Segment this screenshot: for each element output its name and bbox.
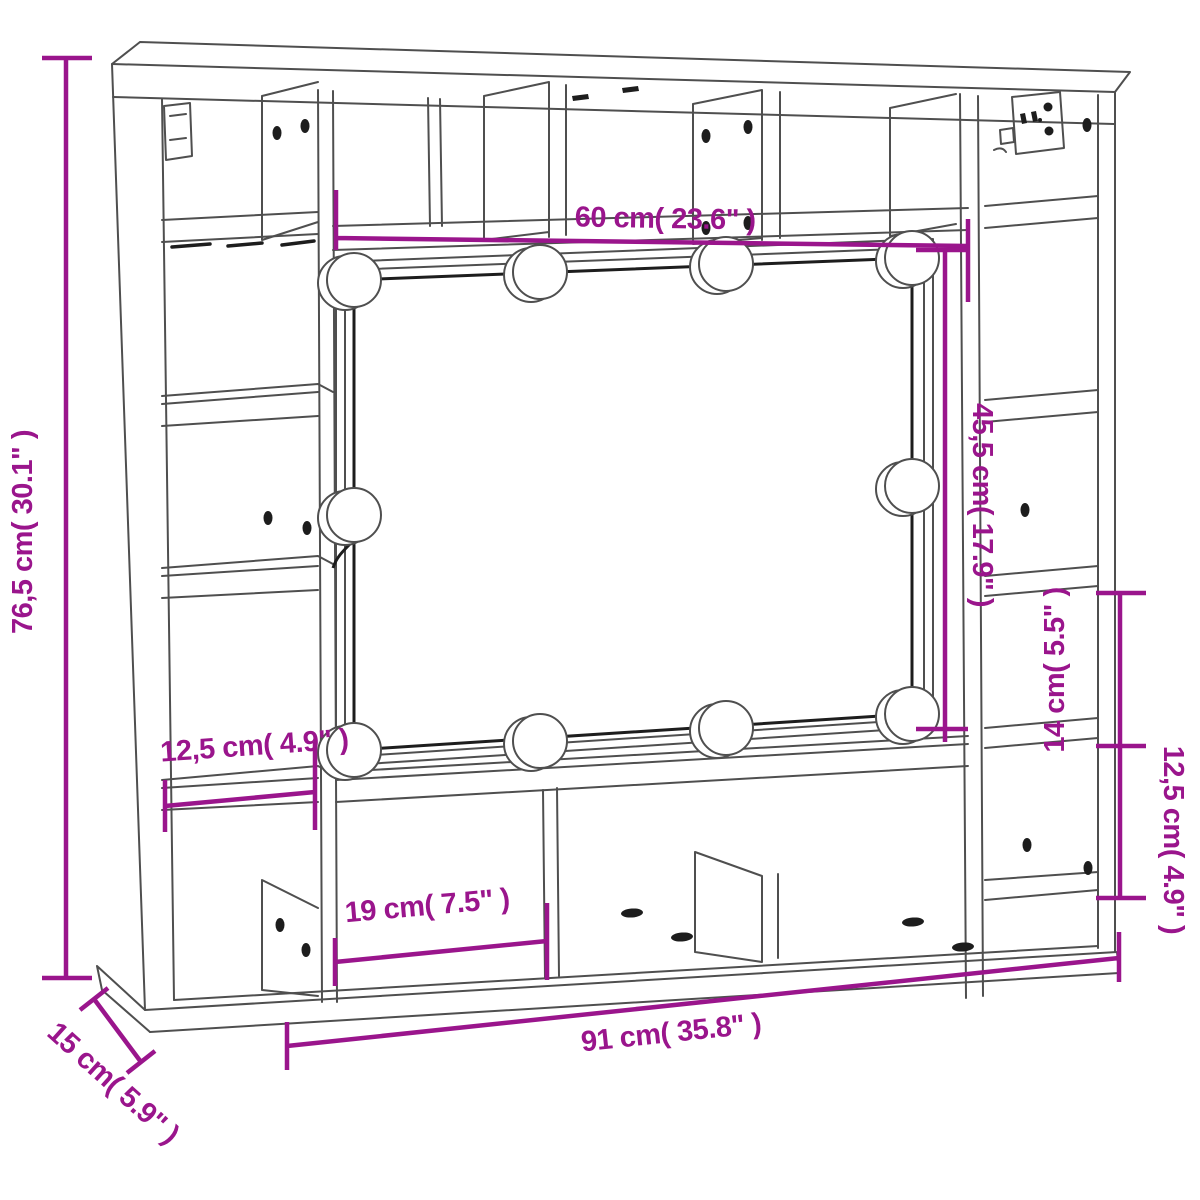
led-bulb-icon bbox=[885, 231, 939, 285]
dim-line-right-upper-shelf-height bbox=[1096, 593, 1146, 746]
bracket-hole bbox=[1038, 118, 1042, 122]
led-bulb-icon bbox=[513, 245, 567, 299]
led-bulb-icon bbox=[327, 488, 381, 542]
floor-hole bbox=[621, 908, 644, 919]
bottom-row-dividers bbox=[543, 788, 778, 978]
led-wire-frame bbox=[354, 258, 912, 750]
bracket-hole bbox=[1044, 103, 1053, 112]
dim-label-mirror-height: 45,5 cm( 17.9" ) bbox=[966, 403, 998, 607]
dimension-overall-height: 76,5 cm( 30.1" ) bbox=[7, 58, 92, 978]
dim-label-bottom-compartment-width: 19 cm( 7.5" ) bbox=[344, 883, 511, 929]
dim-label-mirror-width: 60 cm( 23.6" ) bbox=[574, 201, 755, 236]
dimension-right-upper-shelf-height: 14 cm( 5.5" ) bbox=[1039, 587, 1146, 752]
panel-hole bbox=[302, 943, 311, 957]
panel-hole bbox=[303, 521, 312, 535]
dim-label-depth: 15 cm( 5.9" ) bbox=[41, 1016, 185, 1150]
dimension-right-lower-shelf-height: 12,5 cm( 4.9" ) bbox=[1096, 746, 1189, 934]
panel-hole bbox=[276, 918, 285, 932]
dim-line-right-lower-shelf-height bbox=[1096, 746, 1146, 898]
left-bracket-icon bbox=[164, 103, 192, 160]
shelf-shadow-dashes bbox=[172, 241, 314, 247]
dim-line-overall-height bbox=[42, 58, 92, 978]
mirror-cabinet-dimension-drawing: 76,5 cm( 30.1" ) 60 cm( 23.6" ) 45,5 cm(… bbox=[0, 0, 1200, 1200]
dimensions: 76,5 cm( 30.1" ) 60 cm( 23.6" ) 45,5 cm(… bbox=[7, 58, 1189, 1150]
panel-hole bbox=[1084, 861, 1093, 875]
led-bulb-icon bbox=[513, 714, 567, 768]
cabinet-bottom-slab bbox=[145, 946, 1119, 1032]
dim-label-overall-height: 76,5 cm( 30.1" ) bbox=[7, 430, 39, 634]
panel-hole bbox=[1021, 503, 1030, 517]
cabinet-left-wall bbox=[97, 64, 174, 1032]
dimension-diagram-page: 76,5 cm( 30.1" ) 60 cm( 23.6" ) 45,5 cm(… bbox=[0, 0, 1200, 1200]
led-bulbs bbox=[318, 231, 939, 780]
panel-hole bbox=[301, 119, 310, 133]
dimension-bottom-compartment-width: 19 cm( 7.5" ) bbox=[335, 883, 547, 986]
floor-hole bbox=[952, 942, 975, 953]
dim-label-right-upper-shelf-height: 14 cm( 5.5" ) bbox=[1039, 587, 1071, 752]
cabinet-right-wall bbox=[1098, 92, 1115, 952]
panel-hole bbox=[264, 511, 273, 525]
floor-hole bbox=[671, 932, 694, 943]
led-bulb-icon bbox=[885, 687, 939, 741]
dimension-depth: 15 cm( 5.9" ) bbox=[41, 988, 185, 1150]
led-bulb-icon bbox=[327, 253, 381, 307]
bracket-hole bbox=[1045, 127, 1054, 136]
led-bulb-icon bbox=[885, 459, 939, 513]
mirror bbox=[318, 231, 939, 780]
left-column-shelves bbox=[162, 212, 333, 810]
floor-hole bbox=[902, 917, 925, 928]
panel-hole bbox=[273, 126, 282, 140]
dim-label-overall-width: 91 cm( 35.8" ) bbox=[579, 1008, 762, 1059]
dim-label-right-lower-shelf-height: 12,5 cm( 4.9" ) bbox=[1157, 746, 1189, 934]
panel-hole bbox=[1083, 118, 1092, 132]
left-divider bbox=[262, 82, 337, 1002]
mirror-frame-outer bbox=[336, 239, 933, 766]
panel-hole bbox=[1023, 838, 1032, 852]
panel-hole bbox=[744, 120, 753, 134]
panel-hole bbox=[702, 129, 711, 143]
top-screw-marks bbox=[572, 86, 639, 101]
led-bulb-icon bbox=[699, 701, 753, 755]
